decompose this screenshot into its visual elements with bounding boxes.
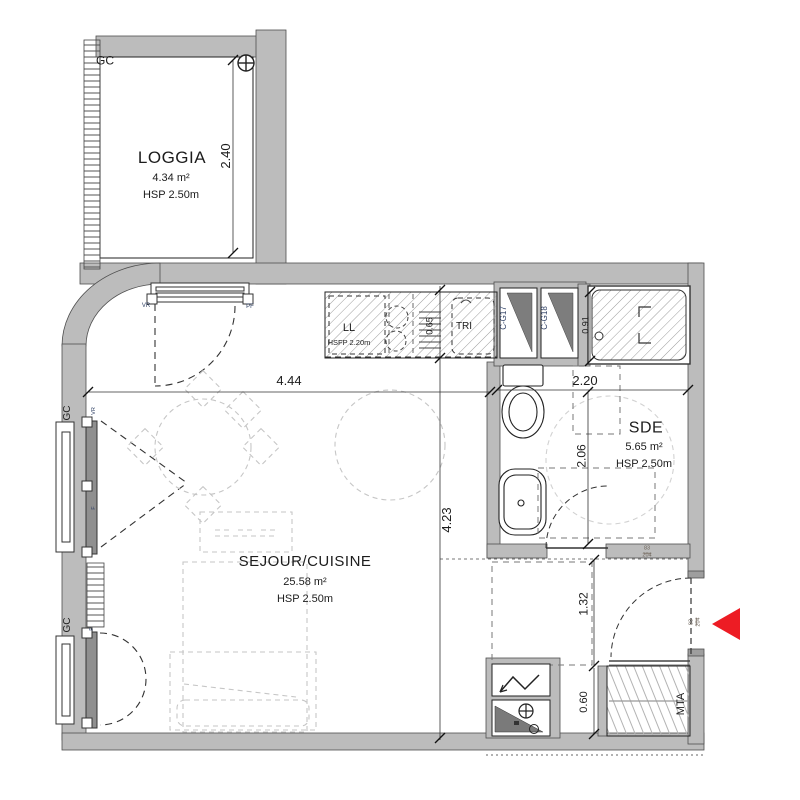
- tech-box-duct: [492, 700, 550, 736]
- tech-box-electrical: [492, 664, 550, 696]
- closet-left-strip: [598, 666, 607, 736]
- shower: [588, 286, 690, 364]
- chair: [243, 429, 280, 466]
- toilet: [502, 365, 544, 438]
- duct-17-label: C-G17: [500, 306, 508, 330]
- sde-door: [546, 486, 608, 548]
- shower-drain-icon: [595, 332, 603, 340]
- tri-label: TRI: [456, 322, 472, 333]
- room-area-sde: 5.65 m²: [625, 442, 662, 454]
- room-area-sejour: 25.58 m²: [283, 577, 326, 589]
- entry-door-jamb-top: [688, 571, 704, 578]
- wall-loggia-right: [256, 30, 286, 284]
- radiator: [87, 563, 104, 627]
- door-height: 204: [697, 617, 703, 626]
- room-area-loggia: 4.34 m²: [152, 173, 189, 185]
- survey-point-icon: [238, 55, 254, 71]
- dim-sejour-width: 4.44: [276, 374, 301, 388]
- room-ceiling-sde: HSP 2.50m: [616, 459, 672, 471]
- turning-circle: [335, 390, 445, 500]
- entry-door-size-tag: 83 204: [690, 617, 703, 626]
- f-label-window1: F: [92, 506, 98, 509]
- room-ceiling-loggia: HSP 2.50m: [143, 190, 199, 202]
- washer-note: HSFP 2.20m: [328, 339, 371, 347]
- door-height: 204: [642, 554, 651, 560]
- loggia-railing: [84, 40, 100, 269]
- furniture: [127, 371, 674, 732]
- entrance-arrow-icon: [712, 608, 740, 640]
- dim-counter-depth: 0.65: [425, 317, 434, 335]
- pf-label-bay: PF: [246, 304, 254, 310]
- chair: [185, 371, 222, 408]
- room-ceiling-sejour: HSP 2.50m: [277, 594, 333, 606]
- door-swings: [100, 304, 235, 725]
- gc-label-window2: GC: [63, 618, 74, 633]
- dim-closet-depth: 0.60: [579, 691, 591, 712]
- chair: [185, 487, 222, 524]
- wall-sde-bottom-left: [487, 544, 547, 558]
- gc-label-loggia: GC: [96, 55, 114, 68]
- dim-shower-width: 0.91: [581, 316, 590, 334]
- survey-point-icon: [519, 704, 533, 718]
- floor-plan: GC LOGGIA 4.34 m² HSP 2.50m 2.40 VR PF 4…: [0, 0, 800, 800]
- chair: [127, 429, 164, 466]
- dim-loggia-depth: 2.40: [219, 143, 233, 168]
- plan-linework: [0, 0, 800, 800]
- chair: [225, 392, 262, 429]
- wall-top: [80, 263, 702, 284]
- room-name-sejour: SEJOUR/CUISINE: [239, 554, 372, 570]
- mta-label: MTA: [676, 693, 688, 715]
- dining-table: [155, 399, 251, 495]
- sideboard: [200, 512, 292, 552]
- washbasin: [499, 469, 546, 535]
- wall-loggia-top: [96, 36, 258, 57]
- duct-18-label: C-G18: [541, 306, 549, 330]
- washer-label: LL: [343, 323, 355, 335]
- wall-sde-left: [487, 362, 500, 558]
- dim-sejour-depth: 4.23: [440, 507, 454, 532]
- dim-sde-width: 2.20: [572, 374, 597, 388]
- dim-entry-depth: 1.32: [578, 592, 591, 615]
- f-label-window2: F: [90, 627, 96, 630]
- loggia-bay-door: [147, 283, 253, 304]
- room-name-loggia: LOGGIA: [138, 149, 206, 167]
- vr-label-bay: VR: [142, 303, 150, 309]
- dim-sde-depth: 2.06: [576, 444, 589, 467]
- entry-door: [609, 578, 691, 665]
- gc-label-window1: GC: [63, 406, 74, 421]
- sofa-bed: [170, 652, 316, 730]
- room-name-sde: SDE: [629, 421, 663, 438]
- sofa-bed-seat: [177, 700, 309, 726]
- sde-door-size-tag: 83 204: [642, 547, 651, 560]
- vr-label-window1: VR: [92, 407, 98, 415]
